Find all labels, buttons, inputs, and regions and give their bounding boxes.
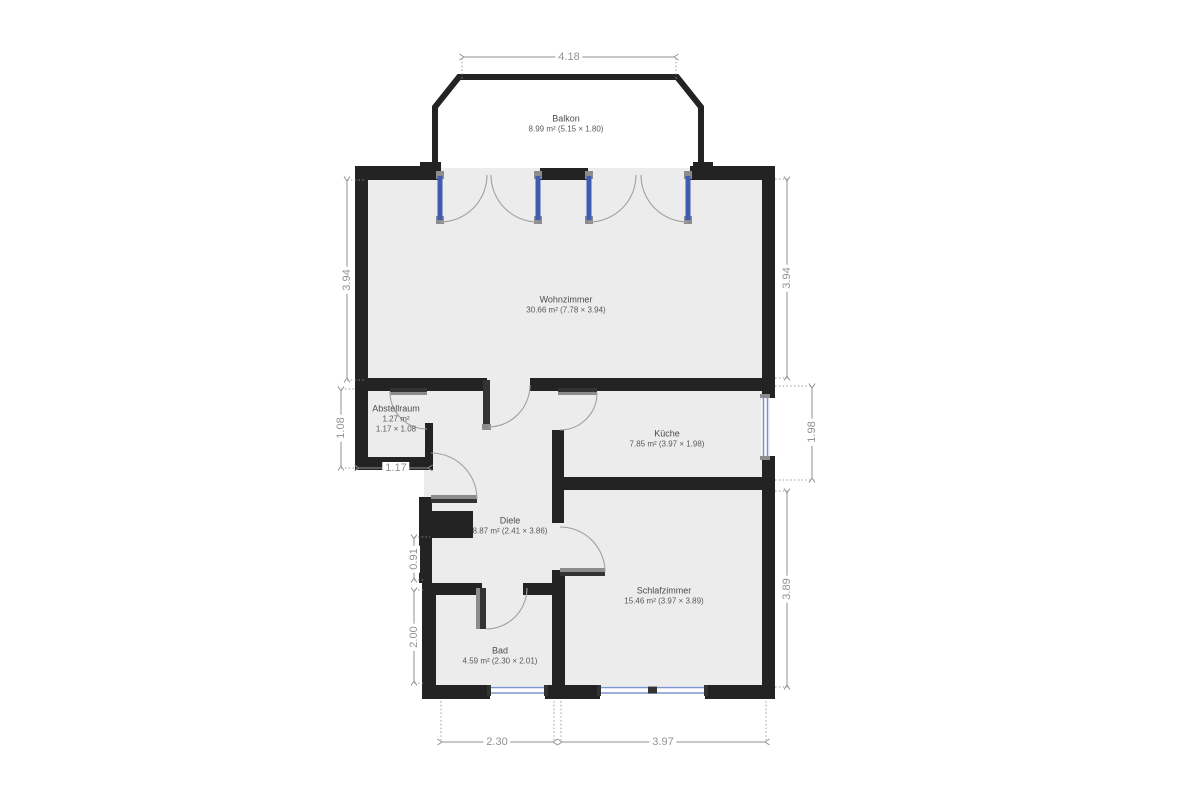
wall-segment [762,456,775,490]
wall-segment [425,423,433,457]
schlafzimmer-window [597,685,708,696]
wall-segment [762,490,775,699]
wall-segment [552,570,565,699]
wall-segment [422,583,436,699]
balcony-wall [435,77,701,168]
wall-segment [552,685,600,699]
wall-segment [355,166,368,390]
dim-label-left-upper: 3.94 [341,266,353,293]
wall-segment [419,497,432,583]
wohnzimmer-floor [358,168,772,392]
wall-segment [552,477,775,490]
wall-segment [540,168,588,180]
wall-segment [422,583,482,595]
dim-label-right-upper: 3.94 [781,264,793,291]
kueche-window [760,394,770,460]
schlafzimmer-floor [552,482,770,692]
dim-label-left-abstellraum: 1.08 [335,414,347,441]
dim-label-right-schlafzimmer: 3.89 [781,575,793,602]
wall-segment [355,378,368,470]
floor-plan: Balkon 8.99 m² (5.15 × 1.80) Wohnzimmer … [0,0,1200,800]
dim-label-top-width: 4.18 [555,51,582,63]
dim-label-bottom-schlafzimmer: 3.97 [649,736,676,748]
kueche-floor [545,382,770,487]
shaft [430,511,473,538]
wall-segment [705,685,775,699]
diele-floor [424,390,564,590]
dim-label-bottom-bad: 2.30 [483,736,510,748]
window-mullion [648,687,657,694]
wall-segment [422,685,490,699]
dim-label-left-shaft: 0.91 [408,545,420,572]
dim-label-abstellraum-width: 1.17 [382,462,409,474]
bad-window [487,685,548,696]
bad-floor [424,580,562,692]
dim-label-left-bad: 2.00 [408,623,420,650]
floor-plan-drawing [0,0,1200,800]
dim-label-right-kueche: 1.98 [806,418,818,445]
wall-segment [762,166,775,392]
balcony [420,77,713,173]
wall-segment [552,492,564,523]
